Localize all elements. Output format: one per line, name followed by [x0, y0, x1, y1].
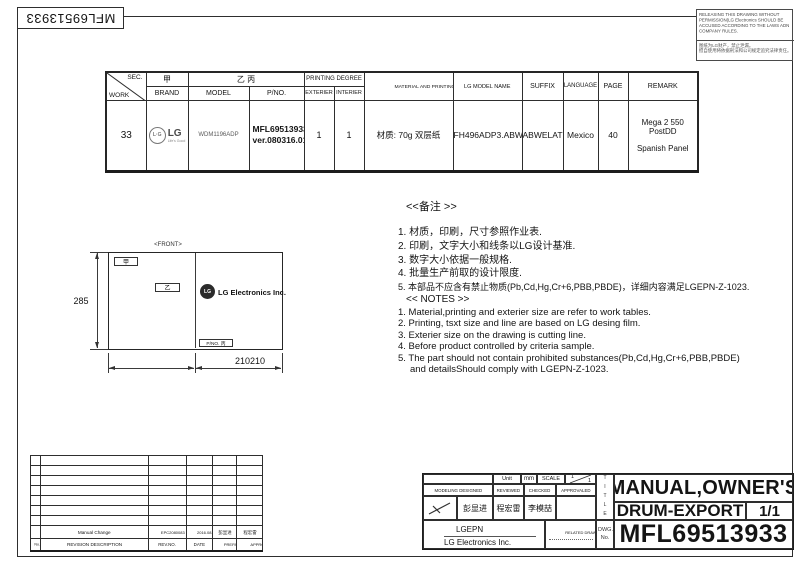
tb-title-vertical-cell: TITLE	[596, 474, 614, 520]
exterier-value: 1	[304, 100, 334, 171]
front-label: <FRONT>	[138, 242, 198, 248]
tb-reviewed-name: 程宏雷	[493, 496, 524, 520]
rev-header-no: No.	[31, 539, 41, 551]
tag-a-label: 甲	[123, 257, 129, 266]
tb-title-line1-cell: MANUAL,OWNER'S	[614, 474, 793, 502]
page-value: 40	[598, 100, 628, 171]
tb-approvaled-empty	[556, 496, 596, 520]
brand-logo-text: LG	[168, 128, 182, 139]
tb-dwg-label-cell: DWG. No.	[596, 520, 614, 549]
header-printing-degree: PRINTING DEGREE	[304, 72, 364, 86]
rotated-docnumber: MFL69513933	[26, 11, 115, 26]
note-en-2: 2. Printing, tsxt size and line are base…	[398, 318, 740, 329]
tag-b-label: 乙	[164, 283, 170, 292]
tb-scale-value: 1 1	[565, 474, 596, 484]
signature-mark	[426, 499, 454, 517]
rev-header-date: DATE	[187, 539, 213, 551]
tb-header-checked: CHECKED	[524, 484, 556, 496]
hdim-ext-right	[282, 353, 283, 373]
header-model-pno-cn: 乙 丙	[188, 72, 304, 86]
pno-cell: MFL69513933 ver.080316.01	[249, 100, 304, 171]
rev-entry-approvaled: 程宏雷	[237, 526, 263, 539]
sheet-number: 1/1	[759, 503, 780, 520]
header-suffix: SUFFIX	[522, 72, 563, 100]
tb-header-approvaled: APPROVALED	[556, 484, 596, 496]
vdim-line	[97, 253, 98, 348]
material-value: 材质: 70g 双层纸	[364, 100, 453, 171]
dim-height-label: 285	[68, 296, 94, 306]
pno-tag-label: P/NO. 丙	[206, 340, 225, 347]
remark-line3: Spanish Panel	[629, 144, 698, 153]
note-cn-2: 2. 印刷，文字大小和线条以LG设计基准.	[398, 240, 749, 254]
hdim-arrow-3	[196, 366, 202, 370]
header-brand-cn: 甲	[146, 72, 188, 86]
rev-header-revno: REV.NO.	[149, 539, 187, 551]
pno-line1: MFL69513933	[253, 124, 304, 135]
notes-en: << NOTES >> 1. Material,printing and ext…	[398, 294, 740, 375]
notes-cn: <<备注 >> 1. 材质，印刷，尺寸参照作业表. 2. 印刷，文字大小和线条以…	[398, 198, 749, 295]
header-remark: REMARK	[628, 72, 698, 100]
note-en-5: 5. The part should not contain prohibite…	[398, 353, 740, 364]
note-en-5b: and detailsShould comply with LGEPN-Z-10…	[398, 364, 740, 375]
tb-designed-name: 彭显进	[457, 496, 493, 520]
hdim-line-right	[196, 368, 281, 369]
tag-b-box: 乙	[155, 283, 180, 292]
rev-entry-description: Manual Change	[41, 526, 149, 539]
vdim-arrow-up	[95, 253, 99, 259]
tb-unit-label: Unit	[493, 474, 521, 484]
related-drawing-label: RELATED DRAWING	[565, 530, 596, 535]
lg-logo-filled-icon: LG	[200, 284, 215, 299]
hdim-arrow-4	[275, 366, 281, 370]
related-drawing-dotted-line	[549, 539, 593, 540]
hdim-arrow-2	[188, 366, 194, 370]
hdim-ext-left	[108, 353, 109, 373]
note-cn-1: 1. 材质，印刷，尺寸参照作业表.	[398, 226, 749, 240]
rev-entry-revno: EPC2080083	[149, 526, 187, 539]
corner-work-label: WORK	[109, 92, 129, 99]
tb-related-drawing-cell: RELATED DRAWING	[545, 520, 596, 549]
tb-header-modeling-designed: MODELING DESIGNED	[423, 484, 493, 496]
language-value: Mexico	[563, 100, 598, 171]
tb-signature-cell	[423, 496, 457, 520]
header-interier: INTERIER	[334, 86, 364, 100]
header-exterier: EXTERIER	[304, 86, 334, 100]
header-pno: P/NO.	[249, 86, 304, 100]
lg-logo-icon: L·G	[149, 127, 166, 144]
rev-header-approvaled: APPROVALED	[237, 539, 263, 551]
corner-sec-label: SEC.	[127, 74, 142, 81]
tb-title-line2-cell: DRUM-EXPORT	[614, 502, 746, 520]
note-en-1: 1. Material,printing and exterier size a…	[398, 307, 740, 318]
company-full: LG Electronics Inc.	[444, 538, 511, 547]
notes-cn-title: <<备注 >>	[398, 198, 749, 214]
drawing-sheet: MFL69513933 RELEASING THIS DRAWING WITHO…	[0, 0, 802, 567]
rev-header-prepared: PREPARED	[213, 539, 237, 551]
hdim-ext-mid	[195, 353, 196, 373]
tb-sheet-cell: 1/1	[746, 502, 793, 520]
corner-sec-work-cell: SEC. WORK	[106, 72, 146, 100]
revision-entry-row: Manual Change EPC2080083 2016.08.08 彭显进 …	[31, 526, 263, 539]
warning-text-en: RELEASING THIS DRAWING WITHOUT PERMISSIO…	[699, 12, 793, 34]
rev-header-description: REVISION DESCRIPTION	[41, 539, 149, 551]
remark-line1: Mega 2 550	[629, 118, 698, 127]
company-short: LGEPN	[456, 525, 483, 534]
model-value: WDM1196ADP	[188, 100, 249, 171]
tb-dwg-number-cell: MFL69513933	[614, 520, 793, 549]
note-en-4: 4. Before product controlled by criteria…	[398, 341, 740, 352]
rev-entry-no	[31, 526, 41, 539]
title-line1: MANUAL,OWNER'S	[614, 477, 793, 500]
note-cn-4: 4. 批量生产前取的设计限度.	[398, 267, 749, 281]
tb-header-reviewed: REVIEWED	[493, 484, 524, 496]
pno-tag-box: P/NO. 丙	[199, 339, 233, 347]
panel-company-text: LG Electronics Inc.	[218, 288, 286, 297]
revision-header-row: No. REVISION DESCRIPTION REV.NO. DATE PR…	[31, 539, 263, 551]
tb-scale-label: SCALE	[537, 474, 565, 484]
tb-company-cell: LGEPN LG Electronics Inc.	[423, 520, 545, 549]
interier-value: 1	[334, 100, 364, 171]
header-lg-model-name: LG MODEL NAME	[453, 72, 522, 100]
dwg-number: MFL69513933	[619, 520, 787, 549]
panel-divider	[195, 253, 196, 348]
note-en-3: 3. Exterier size on the drawing is cutti…	[398, 330, 740, 341]
rev-entry-date: 2016.08.08	[187, 526, 213, 539]
suffix-value: ABWELAT	[522, 100, 563, 171]
warning-box: RELEASING THIS DRAWING WITHOUT PERMISSIO…	[696, 9, 793, 61]
header-model: MODEL	[188, 86, 249, 100]
panel-outline: 甲 乙 LG LG Electronics Inc. P/NO. 丙	[108, 252, 283, 350]
notes-en-title: << NOTES >>	[398, 294, 740, 305]
tag-a-box: 甲	[114, 257, 138, 266]
ext-line-bottom	[90, 349, 108, 350]
rotated-docnumber-box: MFL69513933	[17, 7, 124, 29]
note-cn-5: 5. 本部品不应含有禁止物质(Pb,Cd,Hg,Cr+6,PBB,PBDE)，详…	[398, 281, 749, 295]
revision-table: Manual Change EPC2080083 2016.08.08 彭显进 …	[30, 455, 263, 552]
rev-entry-prepared: 彭显进	[213, 526, 237, 539]
header-material: MATERIAL AND PRINTING DESCRIPTION	[364, 72, 453, 100]
brand-cell: L·G LG Life's Good	[146, 100, 188, 171]
note-cn-3: 3. 数字大小依据一般规格.	[398, 254, 749, 268]
scale-numerator: 1	[571, 474, 574, 480]
title-line2: DRUM-EXPORT	[617, 502, 744, 520]
dwg-no-label: DWG. No.	[598, 527, 612, 541]
brand-tagline: Life's Good	[168, 139, 186, 143]
hdim-line-left	[109, 368, 194, 369]
remark-cell: Mega 2 550 PostDD Spanish Panel	[628, 100, 698, 171]
work-value: 33	[106, 100, 146, 171]
tb-checked-name: 李模喆	[524, 496, 556, 520]
tb-unit-value: mm	[521, 474, 537, 484]
ext-line-top	[90, 252, 108, 253]
company-underline	[444, 536, 536, 537]
warning-text-cn: 图纸为LG财产，禁止泄漏。 擅自使用将依据刑法和公司规定追究法律责任。	[699, 43, 793, 53]
tb-empty-a	[423, 474, 493, 484]
remark-line2: PostDD	[629, 127, 698, 136]
vdim-arrow-down	[95, 342, 99, 348]
hdim-arrow-1	[109, 366, 115, 370]
header-page: PAGE	[598, 72, 628, 100]
header-brand: BRAND	[146, 86, 188, 100]
dim-width-label: 210210	[226, 356, 274, 366]
header-language: LANGUAGE	[563, 72, 598, 100]
pno-line2: ver.080316.01	[253, 135, 304, 146]
lg-model-name-value: FH496ADP3.ABWELAT	[453, 100, 522, 171]
work-table: SEC. WORK 甲 乙 丙 PRINTING DEGREE MATERIAL…	[105, 71, 699, 173]
title-vertical-label: TITLE	[602, 475, 608, 520]
